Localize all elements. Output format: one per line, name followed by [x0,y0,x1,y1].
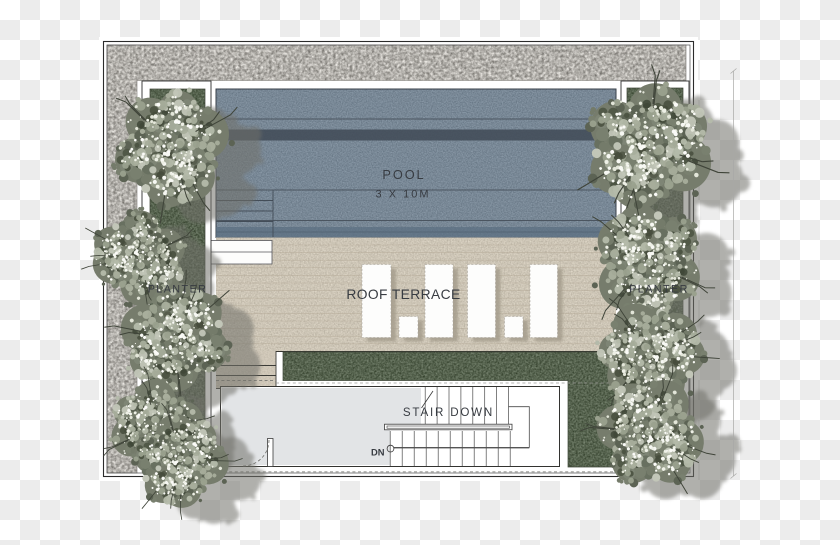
svg-text:STAIR DOWN: STAIR DOWN [403,406,494,419]
svg-text:POOL: POOL [382,167,425,182]
svg-text:DN: DN [371,447,385,458]
svg-text:3 X 10M: 3 X 10M [376,189,431,201]
svg-text:PLANTER: PLANTER [629,284,689,296]
svg-text:PLANTER: PLANTER [148,284,208,296]
svg-text:ROOF TERRACE: ROOF TERRACE [346,287,460,302]
